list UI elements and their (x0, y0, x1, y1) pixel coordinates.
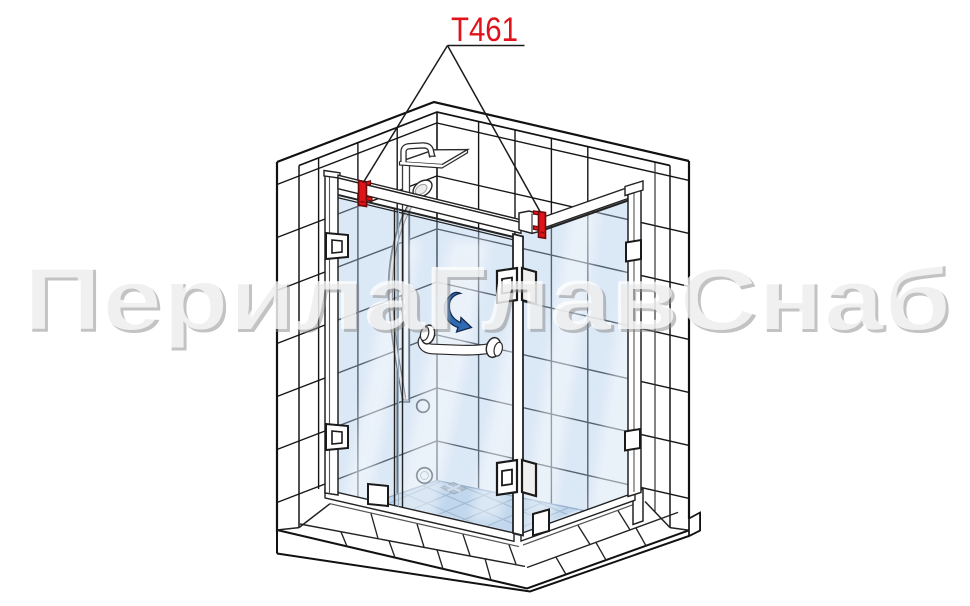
svg-text:T461: T461 (451, 11, 518, 49)
svg-text:ПерилаГлавСнаб: ПерилаГлавСнаб (22, 249, 950, 349)
